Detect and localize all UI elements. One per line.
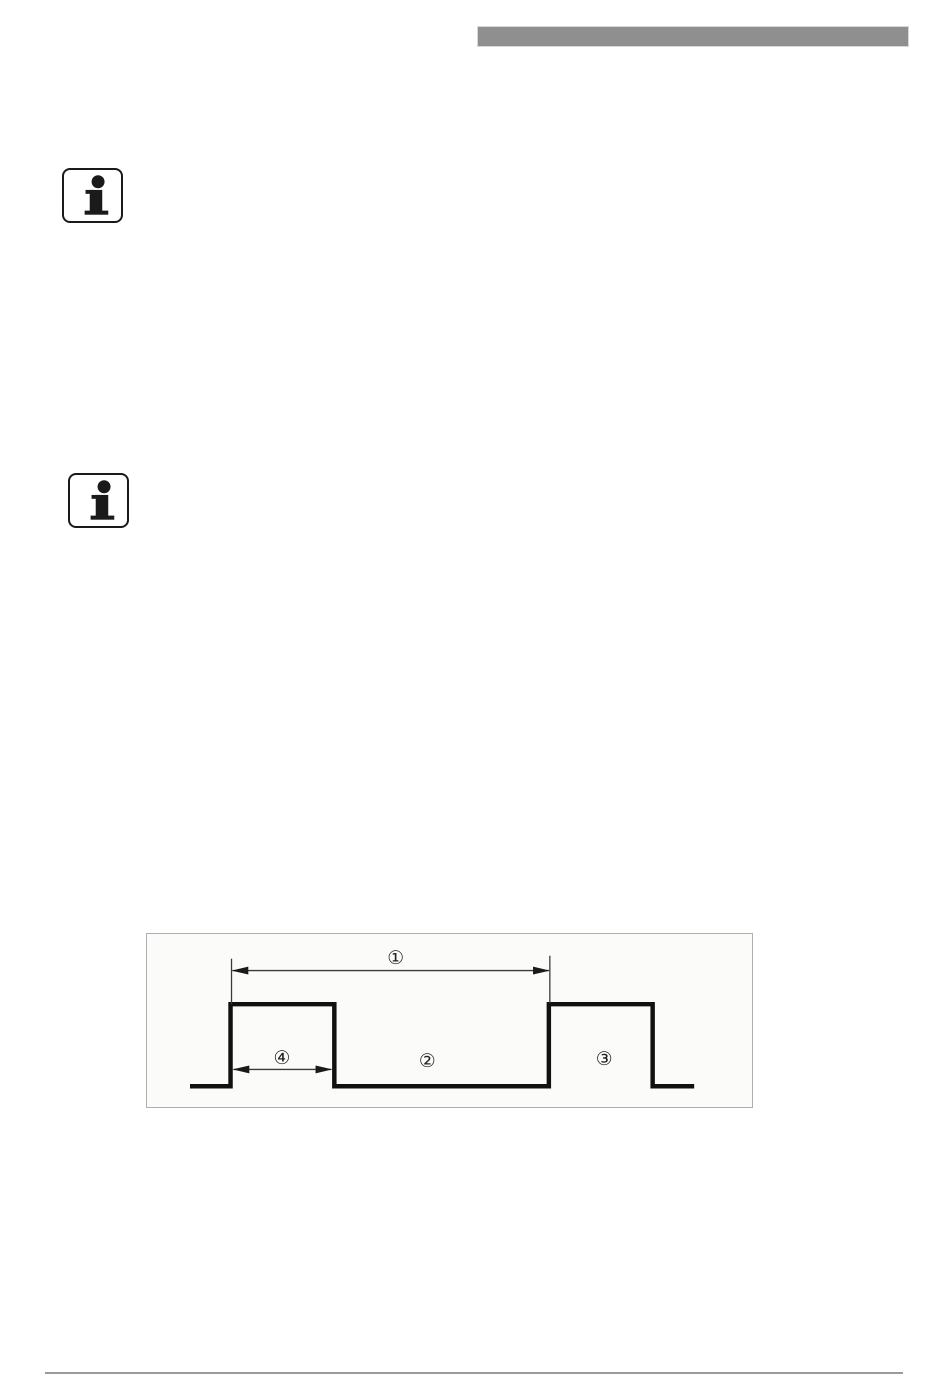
pulse-waveform xyxy=(190,1004,694,1086)
footer-divider xyxy=(45,1372,903,1374)
arrowhead-right-icon xyxy=(533,967,550,975)
info-glyph xyxy=(70,475,127,526)
callout-4-label: ④ xyxy=(274,1048,291,1069)
info-glyph xyxy=(64,170,121,221)
arrowhead-left-icon xyxy=(233,1065,250,1073)
document-page: ① ② ③ ④ xyxy=(0,0,950,1394)
callout-1-label: ① xyxy=(387,948,404,969)
pulse-timing-diagram: ① ② ③ ④ xyxy=(146,933,753,1108)
callout-3-label: ③ xyxy=(596,1049,613,1070)
info-icon xyxy=(62,168,123,223)
arrowhead-right-icon xyxy=(316,1065,333,1073)
pulse-diagram-canvas: ① ② ③ ④ xyxy=(147,934,752,1107)
callout-2-label: ② xyxy=(419,1051,436,1072)
info-icon xyxy=(68,473,129,528)
arrowhead-left-icon xyxy=(232,967,249,975)
header-redaction-bar xyxy=(477,26,909,47)
